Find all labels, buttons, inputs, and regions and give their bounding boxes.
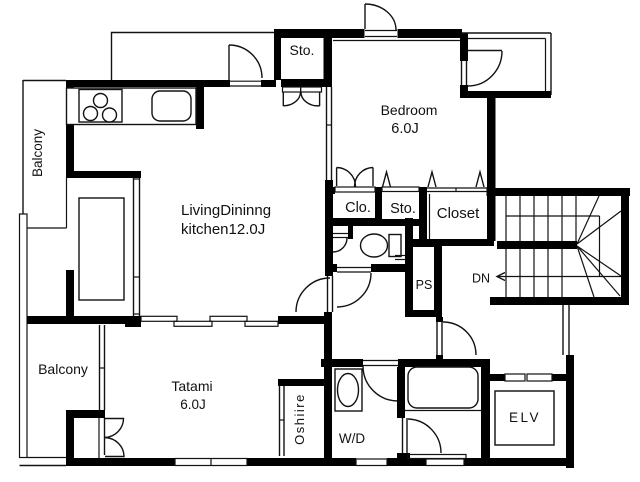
svg-text:Oshiire: Oshiire [292,393,307,445]
svg-text:Tatami: Tatami [171,378,212,394]
svg-text:PS: PS [416,278,433,292]
svg-text:Sto.: Sto. [390,201,416,217]
svg-text:DN: DN [472,272,490,286]
svg-text:6.0J: 6.0J [180,397,206,412]
svg-text:6.0J: 6.0J [391,121,418,137]
svg-text:Balcony: Balcony [30,129,45,177]
svg-text:Balcony: Balcony [38,361,88,377]
svg-text:Clo.: Clo. [345,200,371,216]
svg-text:kitchen12.0J: kitchen12.0J [181,221,265,238]
svg-text:LivingDininng: LivingDininng [181,202,271,219]
svg-text:Sto.: Sto. [290,42,315,58]
svg-text:Bedroom: Bedroom [381,102,438,118]
svg-text:ELV: ELV [509,410,541,425]
svg-text:Closet: Closet [437,205,480,222]
svg-text:W/D: W/D [339,431,365,446]
